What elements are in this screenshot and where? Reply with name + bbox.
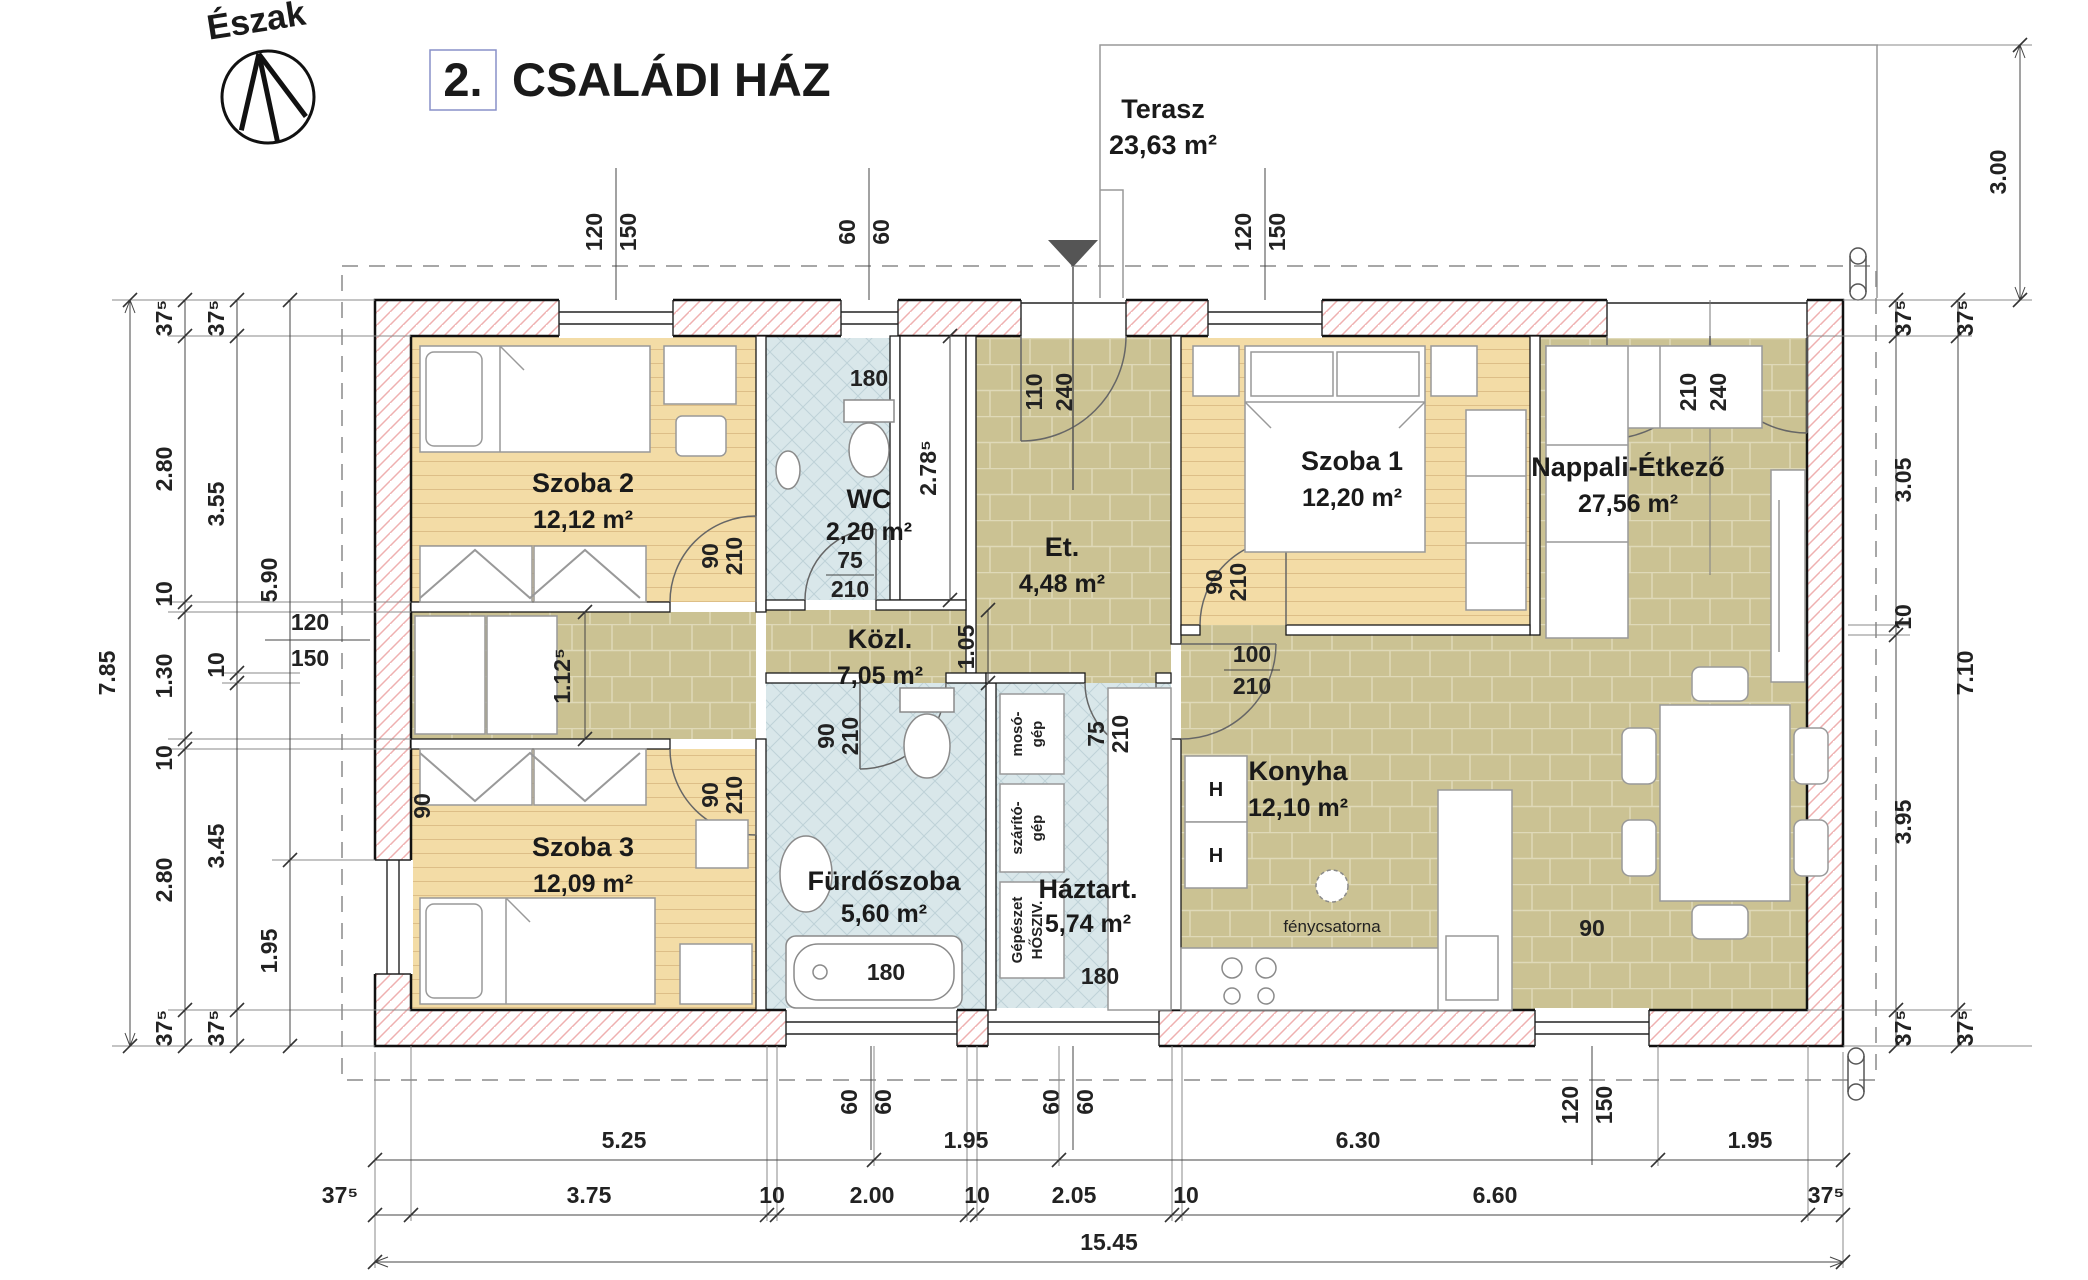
title-number: 2. [443,53,482,106]
dim-b1-0: 5.25 [602,1127,647,1153]
furdo-name: Fürdőszoba [808,866,962,896]
mech-label-1: Gépészet [1009,897,1026,964]
dim-l3-1: 3.55 [203,481,229,526]
title-text: CSALÁDI HÁZ [512,53,831,106]
szoba2-door-w: 90 [697,543,723,569]
szoba3-window-w: 120 [291,609,329,635]
szoba1-door-h: 210 [1225,563,1251,601]
dim-r1-3: 3.95 [1890,799,1916,844]
hob-label-1: H [1209,779,1223,801]
dryer-label-1: szárító- [1009,801,1026,854]
entry-door-w: 110 [1021,373,1047,410]
szoba2-area: 12,12 m² [533,506,633,534]
szoba3-door-w: 90 [697,782,723,808]
drawing-title: 2. CSALÁDI HÁZ [430,50,831,110]
kozl-area: 7,05 m² [837,662,923,690]
floor-plan-page: Észak 2. CSALÁDI HÁZ Terasz 23,63 m² [0,0,2088,1280]
wc-window-label: 180 [850,365,888,391]
dim-b2-6: 10 [1173,1182,1199,1208]
furdo-door-w: 90 [813,723,839,749]
dim-b2-8: 37⁵ [1808,1182,1844,1208]
nappali-window-h: 150 [1591,1086,1617,1124]
nappali-window-w: 120 [1557,1086,1583,1124]
dim-r2-0: 37⁵ [1952,300,1978,336]
light-tunnel-icon [1316,870,1348,902]
dim-r1-2: 10 [1890,604,1916,630]
nappali-sill-label: 90 [1579,915,1605,941]
szoba2-window-h: 150 [615,213,641,251]
dim-r1-0: 37⁵ [1890,300,1916,336]
dim-l2-6: 37⁵ [151,1010,177,1046]
haztart-area: 5,74 m² [1045,910,1131,938]
haztart-window-label: 180 [1081,963,1119,989]
wc-window-w: 60 [834,219,860,245]
szoba1-name: Szoba 1 [1301,446,1403,476]
dim-l2-4: 10 [151,745,177,771]
dim-r1-1: 3.05 [1890,457,1916,502]
left-dimensions: 7.85 37⁵ 2.80 10 1.30 10 2.80 37⁵ 37⁵ 3.… [94,293,411,1053]
szoba2-window-w: 120 [581,213,607,251]
furdo-door-h: 210 [837,717,863,755]
dim-b1-1: 1.95 [944,1127,989,1153]
furdo-window-w: 60 [836,1089,862,1115]
light-tunnel-label: fénycsatorna [1283,917,1381,936]
terrace-name: Terasz [1121,94,1205,124]
et-name: Et. [1045,532,1080,562]
dim-l3-4: 37⁵ [203,1010,229,1046]
dim-l4-1: 1.95 [256,928,282,973]
kozl-width-left-dim: 1.12⁵ [549,648,575,704]
north-label: Észak [204,0,309,48]
bathtub-length: 180 [867,959,905,985]
haztart-door-w: 75 [1083,721,1109,747]
szoba3-name: Szoba 3 [532,832,634,862]
nappali-name: Nappali-Étkező [1531,451,1725,482]
dim-l2-0: 37⁵ [151,300,177,336]
wc-window-h: 60 [868,219,894,245]
szoba3-window-h: 150 [291,645,329,671]
terrace: Terasz 23,63 m² [1100,45,1877,298]
dim-b1-2: 6.30 [1336,1127,1381,1153]
entry-door-h: 240 [1051,373,1077,411]
kozl-width-right-dim: 1.05 [953,624,979,669]
szoba1-window-h: 150 [1264,213,1290,251]
dim-l2-2: 10 [151,581,177,607]
dim-l3-3: 3.45 [203,823,229,868]
haztart-bottom-window-h: 60 [1072,1089,1098,1115]
konyha-door-h: 210 [1233,673,1271,699]
dim-bottom-total: 15.45 [1080,1229,1138,1255]
dim-r2-1: 7.10 [1952,651,1978,696]
et-area: 4,48 m² [1019,570,1105,598]
szoba1-window-w: 120 [1230,213,1256,251]
terrace-depth-dim: 3.00 [1985,150,2011,195]
wc-door-w: 75 [837,547,863,573]
konyha-name: Konyha [1248,756,1348,786]
dim-r1-4: 37⁵ [1890,1010,1916,1046]
dim-b1-3: 1.95 [1728,1127,1773,1153]
konyha-area: 12,10 m² [1248,794,1348,822]
kozl-name: Közl. [848,624,913,654]
konyha-door-w: 100 [1233,641,1271,667]
haztart-name: Háztart. [1038,874,1137,904]
nappali-area: 27,56 m² [1578,490,1678,518]
dim-l2-5: 2.80 [151,858,177,903]
terrace-door-h: 240 [1705,373,1731,411]
dim-b2-0: 37⁵ [322,1182,358,1208]
dim-l2-3: 1.30 [151,654,177,699]
dim-b2-7: 6.60 [1473,1182,1518,1208]
washer-label-1: mosó- [1009,711,1026,756]
dim-l3-2: 10 [203,652,229,678]
north-compass-icon: Észak [204,0,323,152]
dim-b2-1: 3.75 [567,1182,612,1208]
terrace-area: 23,63 m² [1109,130,1217,160]
szoba3-door-h: 210 [721,776,747,814]
wc-door-h: 210 [831,576,869,602]
dim-r2-2: 37⁵ [1952,1010,1978,1046]
dim-l4-0: 5.90 [256,558,282,603]
dim-b2-5: 2.05 [1052,1182,1097,1208]
szoba2-name: Szoba 2 [532,468,634,498]
dim-b2-2: 10 [759,1182,785,1208]
mech-label-2: HŐSZIV. [1028,901,1046,960]
floor-plan-drawing: Észak 2. CSALÁDI HÁZ Terasz 23,63 m² [0,0,2088,1280]
dim-b2-3: 2.00 [850,1182,895,1208]
dim-b2-4: 10 [964,1182,990,1208]
left-total-dim: 7.85 [94,650,120,695]
haztart-bottom-window-w: 60 [1038,1089,1064,1115]
szoba3-area: 12,09 m² [533,870,633,898]
wc-area: 2,20 m² [826,518,912,546]
dim-l2-1: 2.80 [151,447,177,492]
dryer-label-2: gép [1029,815,1046,842]
wc-name: WC [847,484,892,514]
szoba3-sill-label: 90 [409,793,435,819]
furdo-area: 5,60 m² [841,900,927,928]
szoba1-area: 12,20 m² [1302,484,1402,512]
washer-label-2: gép [1029,721,1046,748]
szoba2-door-h: 210 [721,537,747,575]
szoba1-door-w: 90 [1201,569,1227,595]
wc-depth-dim: 2.78⁵ [915,440,941,496]
dim-l3-0: 37⁵ [203,300,229,336]
hob-label-2: H [1209,845,1223,867]
haztart-door-h: 210 [1107,715,1133,753]
downspout-icons [1848,248,1866,1100]
terrace-door-w: 210 [1675,373,1701,411]
